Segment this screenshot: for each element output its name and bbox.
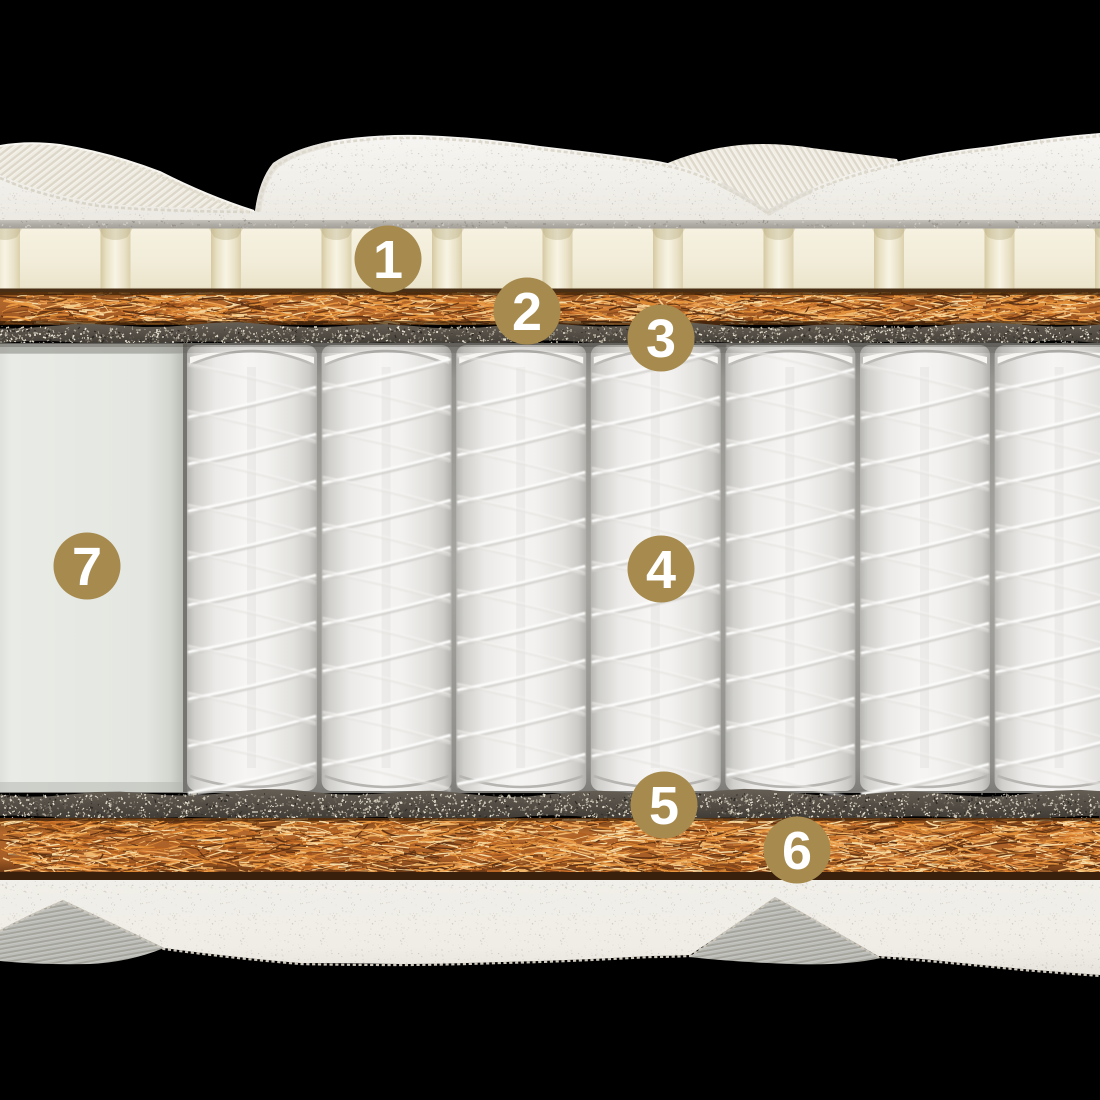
svg-text:6: 6	[782, 821, 812, 881]
svg-text:4: 4	[646, 540, 676, 600]
svg-text:2: 2	[512, 282, 542, 342]
svg-text:7: 7	[72, 537, 102, 597]
svg-text:3: 3	[646, 309, 676, 369]
svg-text:5: 5	[649, 776, 679, 836]
svg-text:1: 1	[373, 230, 403, 290]
